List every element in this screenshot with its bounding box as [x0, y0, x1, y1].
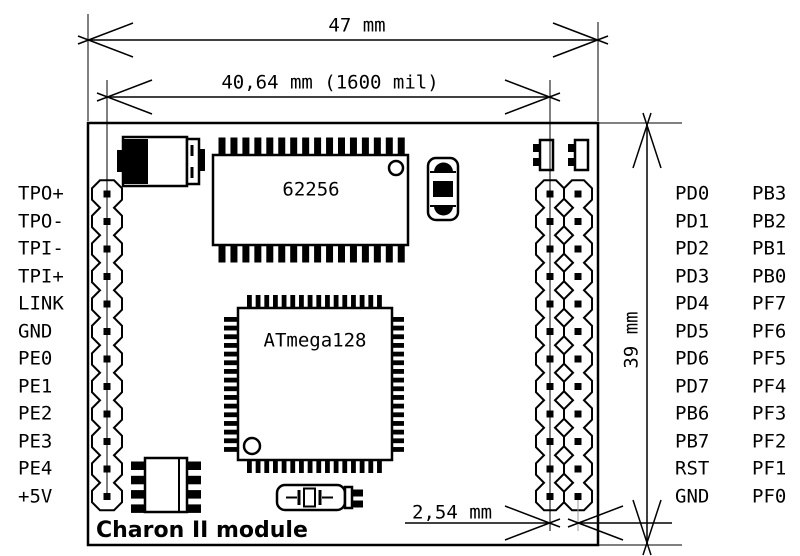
right-pin-label-outer: PB1 — [752, 240, 786, 259]
dim-board-height-label: 39 mm — [623, 311, 642, 368]
right-pin-header — [536, 180, 592, 510]
dim-pin-span-label: 40,64 mm (1600 mil) — [221, 74, 438, 93]
left-pin-label: GND — [18, 322, 52, 341]
mcu-chip-label: ATmega128 — [264, 332, 367, 351]
crystal — [277, 485, 363, 510]
right-pin-label-inner: PB7 — [675, 432, 709, 451]
dim-pin-pitch-label: 2,54 mm — [412, 504, 492, 523]
right-pin-label-outer: PB0 — [752, 267, 786, 286]
left-pin-label: +5V — [18, 487, 52, 506]
dim-board-width-label: 47 mm — [328, 17, 385, 36]
module-title: Charon II module — [96, 520, 308, 542]
left-pin-label: PE3 — [18, 432, 52, 451]
left-pin-label: TPO+ — [18, 185, 64, 204]
right-pin-label-outer: PF5 — [752, 350, 786, 369]
right-pin-label-inner: PD3 — [675, 267, 709, 286]
right-pin-label-inner: RST — [675, 460, 709, 479]
right-pin-label-inner: PD2 — [675, 240, 709, 259]
right-pin-label-inner: PD0 — [675, 185, 709, 204]
right-pin-label-outer: PB3 — [752, 185, 786, 204]
right-pin-label-inner: PB6 — [675, 405, 709, 424]
mcu-chip — [224, 295, 404, 473]
right-pin-label-inner: PD7 — [675, 377, 709, 396]
right-pin-label-outer: PF6 — [752, 322, 786, 341]
left-pin-label: PE1 — [18, 377, 52, 396]
left-pin-label: TPO- — [18, 212, 64, 231]
left-pin-label: PE0 — [18, 350, 52, 369]
right-pin-label-inner: PD4 — [675, 295, 709, 314]
right-pin-label-inner: PD6 — [675, 350, 709, 369]
right-pin-label-inner: GND — [675, 487, 709, 506]
left-pin-label: PE4 — [18, 460, 52, 479]
right-pin-label-outer: PF3 — [752, 405, 786, 424]
left-pin-label: PE2 — [18, 405, 52, 424]
right-pin-label-outer: PF1 — [752, 460, 786, 479]
charon-module-diagram: 47 mm 40,64 mm (1600 mil) 62256 ATmega12… — [0, 0, 800, 556]
right-pin-label-outer: PF0 — [752, 487, 786, 506]
resonator — [428, 158, 458, 220]
left-pin-label: TPI- — [18, 240, 64, 259]
sram-chip-label: 62256 — [282, 181, 339, 200]
right-pin-label-outer: PF7 — [752, 295, 786, 314]
left-pin-label: LINK — [18, 295, 64, 314]
left-pin-label: TPI+ — [18, 267, 64, 286]
right-pin-label-outer: PB2 — [752, 212, 786, 231]
right-pin-label-inner: PD1 — [675, 212, 709, 231]
right-pin-label-inner: PD5 — [675, 322, 709, 341]
right-pin-label-outer: PF4 — [752, 377, 786, 396]
right-pin-label-outer: PF2 — [752, 432, 786, 451]
